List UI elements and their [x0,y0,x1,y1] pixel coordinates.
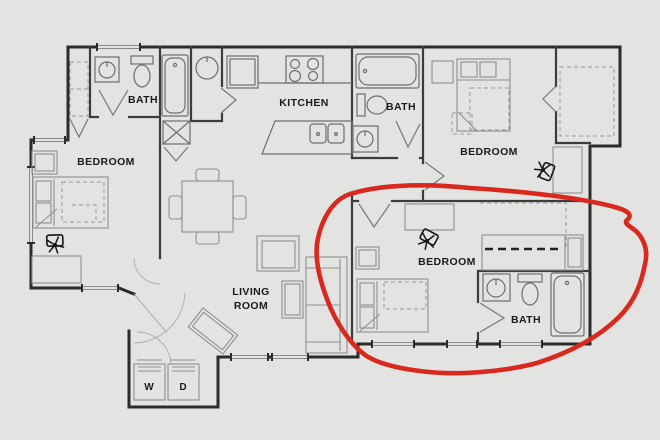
window-living-bottom-2 [272,353,308,361]
room-labels: BATH BEDROOM KITCHEN BATH BEDROOM LIVING… [77,94,541,393]
burner [290,71,301,82]
bed-icon-2 [357,279,428,332]
bathtub-icon [162,55,188,116]
office-chair-icon [44,231,68,256]
doors [70,86,556,365]
dining-chair-left [169,196,182,219]
door-chevron-walkin [543,86,556,112]
door-chevron-bath2 [396,121,420,147]
toilet-icon [522,283,538,305]
bed-icon [482,235,583,270]
door-chevron-utility [221,88,236,113]
dining-chair-right [233,196,246,219]
bathtub-icon [356,54,419,88]
toilet-tank-icon [518,274,542,282]
room-label-bath-right: BATH [511,314,541,326]
desk-icon [553,147,582,193]
window-bedroomL-bottom [82,284,118,292]
wall-walkin-closet [556,47,590,143]
office-chair-icon [533,161,555,181]
window-left-jog [34,136,65,144]
room-label-bath-top-middle: BATH [386,101,416,113]
dashed-furniture [452,88,509,134]
window-bedroomC-bottom-2 [447,340,477,348]
door-arc-bedroomL [134,258,160,284]
room-label-living-line2: ROOM [234,300,268,312]
laundry-fixtures [134,360,199,400]
room-label-bath-top-left: BATH [128,94,158,106]
bedroom-left-furniture [32,62,108,283]
window-bedroomC-bottom-1 [372,340,414,348]
window-top-bath1 [97,43,140,51]
dashed-furniture [62,182,104,222]
door-chevron-xcloset [164,147,188,161]
closet-dashed [480,203,566,250]
pillow [360,283,374,305]
nightstand-icon [432,61,453,83]
toilet-tank-icon [131,56,153,64]
burner [308,59,319,70]
bed-icon [457,59,510,131]
room-label-bedroom-left: BEDROOM [77,156,135,168]
door-arc-entry [134,293,185,343]
fridge-icon [227,56,258,88]
dryer-lid [172,367,195,371]
living-room-furniture [169,169,347,354]
mechanical-x-icon [163,121,190,144]
armchair-inner [262,241,295,268]
bathtub-drain [173,63,176,66]
drain [317,133,320,136]
floor-plan-screenshot: BATH BEDROOM KITCHEN BATH BEDROOM LIVING… [0,0,660,440]
counter-lower [262,121,352,154]
floor-plan-svg: BATH BEDROOM KITCHEN BATH BEDROOM LIVING… [0,0,660,440]
office-chair-icon [417,228,439,252]
window-living-bottom-1 [231,353,268,361]
desk-icon [32,256,81,283]
door-chevron-bedroomC [359,204,390,227]
toilet-icon [134,65,150,87]
bedroom-top-right-furniture [432,59,614,193]
room-label-bedroom-top-right: BEDROOM [460,146,518,158]
pillow [36,181,51,201]
bathtub-drain [363,69,366,72]
window-bath3-bottom [500,340,542,348]
washer-lid [138,367,161,371]
drain [335,133,338,136]
kitchen-sink-left [310,124,326,143]
bathtub-icon [551,273,584,336]
bathtub-drain [565,281,568,284]
room-label-kitchen: KITCHEN [279,97,328,109]
toilet-tank-icon [357,94,365,116]
pillow [480,62,496,77]
nightstand-inner [35,154,54,171]
tv-stand-icon [188,308,237,354]
window-left-bedroom [27,167,35,243]
fridge-inner [230,59,255,85]
sofa-icon [306,257,347,353]
desk-icon [405,204,454,230]
bath-right-fixtures [483,273,584,336]
blanket-fold [458,112,476,130]
kitchen-sink-right [328,124,344,143]
burner [309,72,318,81]
dining-table-icon [182,181,233,232]
dining-chair-bottom [196,232,219,244]
door-chevron-bath1 [99,90,128,115]
bathtub-inner [359,57,416,85]
walkin-closet-dashed [560,67,614,136]
toilet-icon [367,96,387,114]
room-label-bedroom-right: BEDROOM [418,256,476,268]
side-table-inner [285,284,300,315]
closet-shelving-dashed [70,62,88,116]
dining-chair-top [196,169,219,181]
burner [291,60,300,69]
washer-label: W [144,382,154,393]
door-chevron-bath3 [480,303,504,332]
pillow [461,62,477,77]
room-label-living-line1: LIVING [232,286,269,298]
door-chevron-closetL [70,119,88,137]
nightstand-inner [359,250,376,266]
dryer-label: D [179,382,186,393]
pillow [568,238,581,267]
